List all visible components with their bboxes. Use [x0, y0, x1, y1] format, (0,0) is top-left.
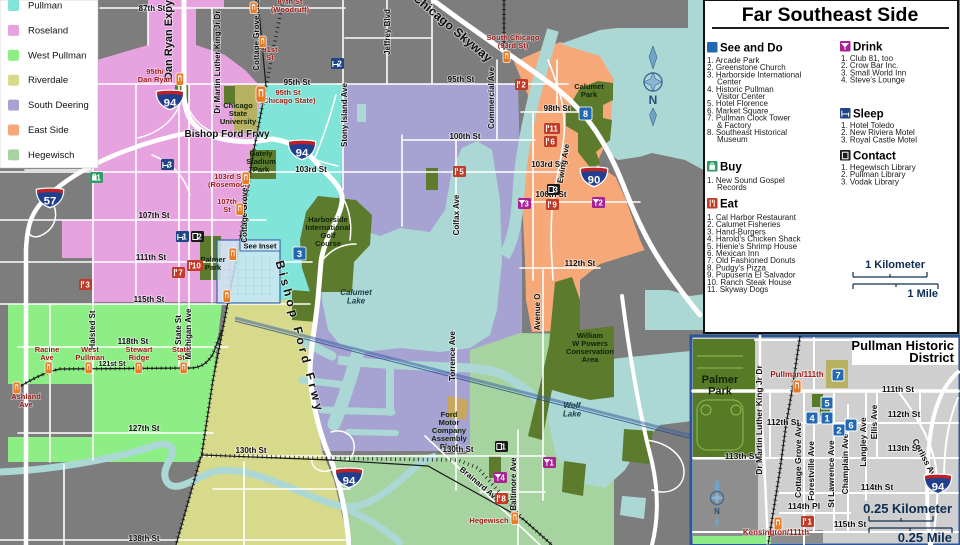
svg-text:Baltimore Ave: Baltimore Ave	[509, 457, 518, 511]
svg-text:N: N	[714, 507, 720, 516]
svg-text:1: 1	[182, 233, 187, 242]
svg-text:N: N	[649, 93, 658, 107]
svg-text:2: 2	[337, 60, 342, 69]
svg-text:98th St: 98th St	[544, 104, 571, 113]
svg-text:0.25 Kilometer: 0.25 Kilometer	[863, 501, 952, 516]
svg-text:2: 2	[197, 233, 202, 242]
svg-text:8: 8	[501, 495, 506, 504]
svg-text:9: 9	[552, 201, 557, 210]
svg-text:Hegewisch: Hegewisch	[28, 150, 74, 161]
svg-text:1: 1	[96, 174, 101, 183]
svg-text:107th St: 107th St	[138, 211, 169, 220]
svg-text:95th St: 95th St	[284, 78, 311, 87]
svg-text:138th St: 138th St	[128, 534, 159, 543]
svg-text:1: 1	[807, 518, 812, 527]
svg-text:Champlain Ave: Champlain Ave	[840, 433, 850, 494]
svg-text:Commercial Ave: Commercial Ave	[487, 66, 496, 129]
svg-text:3: 3	[167, 161, 172, 170]
svg-text:Pullman: Pullman	[28, 1, 62, 12]
svg-text:Bishop Ford Frwy: Bishop Ford Frwy	[185, 129, 270, 140]
svg-text:3: 3	[85, 281, 90, 290]
svg-text:6: 6	[550, 138, 555, 147]
svg-text:114th Pl: 114th Pl	[788, 501, 820, 511]
svg-text:State St: State St	[174, 315, 183, 345]
svg-text:111th St: 111th St	[136, 253, 167, 262]
svg-text:1 Mile: 1 Mile	[907, 288, 938, 300]
svg-text:114th St: 114th St	[861, 482, 894, 492]
svg-text:8: 8	[583, 109, 588, 119]
svg-text:Dr Martin Luther King Jr Dr: Dr Martin Luther King Jr Dr	[754, 365, 764, 475]
svg-text:87th St: 87th St	[139, 4, 166, 13]
svg-text:Torrence Ave: Torrence Ave	[448, 330, 457, 380]
svg-text:Jeffrey Blvd: Jeffrey Blvd	[383, 9, 392, 55]
svg-text:St Lawrence Ave: St Lawrence Ave	[826, 440, 836, 508]
svg-text:94: 94	[296, 147, 309, 159]
svg-text:Riverdale: Riverdale	[28, 75, 68, 86]
svg-text:Drink: Drink	[853, 42, 883, 54]
svg-text:Eat: Eat	[720, 199, 738, 211]
svg-text:1: 1	[501, 443, 506, 452]
svg-text:94: 94	[932, 481, 945, 493]
svg-text:Forestville Ave: Forestville Ave	[806, 441, 816, 501]
svg-text:130th St: 130th St	[442, 445, 473, 454]
svg-text:3: 3	[524, 200, 529, 209]
svg-text:District: District	[909, 350, 954, 365]
svg-text:Stony Island Ave: Stony Island Ave	[340, 83, 349, 147]
svg-text:2: 2	[521, 81, 526, 90]
svg-text:112th St: 112th St	[888, 409, 921, 419]
svg-text:Cottage Grove Ave: Cottage Grove Ave	[793, 422, 803, 498]
svg-text:121st St: 121st St	[99, 361, 127, 368]
svg-text:Avenue O: Avenue O	[533, 293, 542, 330]
svg-text:0.25 Mile: 0.25 Mile	[898, 530, 952, 545]
svg-text:StewartRidge: StewartRidge	[125, 345, 153, 362]
svg-text:WolfLake: WolfLake	[563, 401, 582, 419]
svg-text:East Side: East Side	[28, 125, 69, 136]
svg-text:115th St: 115th St	[834, 519, 867, 529]
svg-text:Sleep: Sleep	[853, 109, 884, 121]
svg-text:7: 7	[178, 269, 183, 278]
svg-text:Roseland: Roseland	[28, 25, 68, 36]
svg-text:5: 5	[459, 168, 464, 177]
svg-text:3: 3	[553, 186, 558, 195]
svg-text:112th St: 112th St	[565, 259, 596, 268]
svg-text:127th St: 127th St	[128, 424, 159, 433]
svg-text:Dan Ryan Expy: Dan Ryan Expy	[163, 0, 175, 80]
svg-text:5: 5	[824, 399, 830, 410]
svg-text:10: 10	[192, 262, 201, 271]
svg-text:Pullman/111th: Pullman/111th	[770, 370, 823, 379]
svg-text:111th St: 111th St	[882, 384, 914, 394]
svg-text:Contact: Contact	[853, 151, 896, 163]
svg-text:115th St: 115th St	[134, 295, 165, 304]
svg-text:Hegewisch: Hegewisch	[469, 516, 509, 525]
svg-text:4: 4	[500, 474, 505, 483]
svg-text:57: 57	[44, 195, 57, 207]
svg-text:Far Southeast Side: Far Southeast Side	[742, 4, 919, 26]
svg-text:1: 1	[824, 414, 830, 425]
svg-text:Halsted St: Halsted St	[88, 310, 97, 349]
svg-text:Ellis Ave: Ellis Ave	[869, 404, 879, 439]
svg-text:Buy: Buy	[720, 162, 742, 174]
svg-text:103rd St: 103rd St	[295, 165, 327, 174]
svg-text:Langley Ave: Langley Ave	[858, 417, 868, 467]
svg-text:90: 90	[588, 174, 601, 186]
svg-text:1 Kilometer: 1 Kilometer	[865, 259, 926, 271]
svg-text:South Deering: South Deering	[28, 100, 89, 111]
svg-text:130th St: 130th St	[235, 446, 266, 455]
svg-text:2: 2	[836, 426, 841, 437]
svg-text:See and Do: See and Do	[720, 43, 783, 55]
svg-text:West Pullman: West Pullman	[28, 50, 86, 61]
svg-text:95th St: 95th St	[448, 75, 475, 84]
svg-text:11: 11	[549, 125, 558, 134]
svg-text:1: 1	[549, 459, 554, 468]
svg-text:113th St: 113th St	[725, 451, 758, 461]
svg-text:94: 94	[164, 97, 177, 109]
svg-text:6: 6	[848, 421, 853, 432]
svg-text:3: 3	[297, 249, 302, 259]
svg-text:7: 7	[835, 371, 840, 382]
svg-text:100th St: 100th St	[449, 132, 480, 141]
svg-text:Dr Martin Luther King Jr Dr: Dr Martin Luther King Jr Dr	[213, 10, 222, 113]
svg-text:94: 94	[343, 475, 356, 487]
svg-text:4: 4	[809, 414, 815, 425]
svg-text:2: 2	[598, 199, 603, 208]
svg-text:Colfax Ave: Colfax Ave	[452, 194, 461, 235]
